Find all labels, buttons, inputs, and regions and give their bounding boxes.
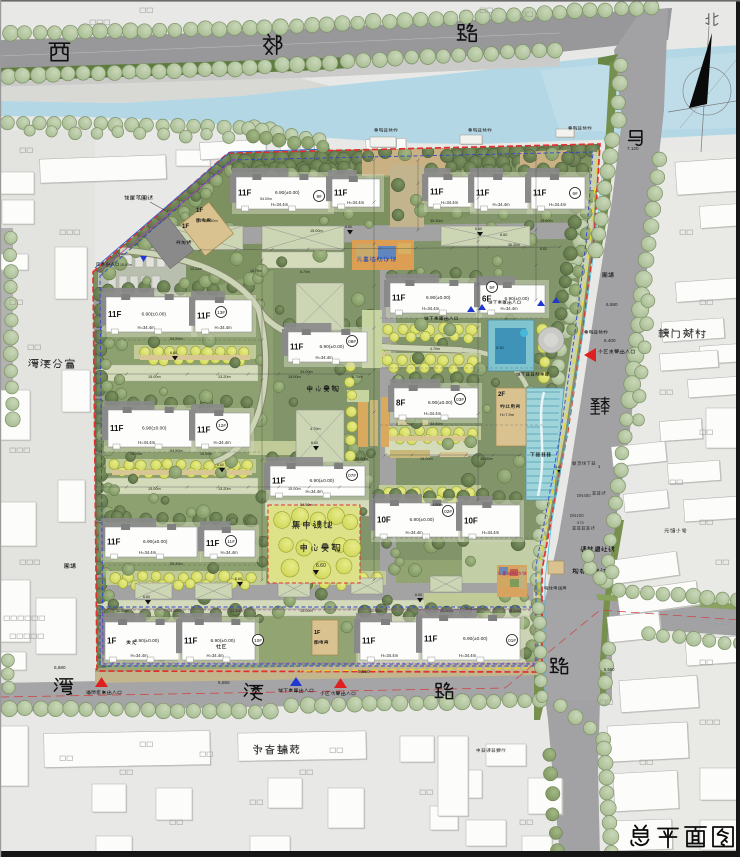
svg-text:5,680: 5,680 [54, 665, 66, 670]
svg-text:11F: 11F [272, 477, 285, 486]
svg-text:1F: 1F [314, 630, 321, 636]
svg-text:5,550: 5,550 [218, 680, 230, 685]
svg-text:6.60: 6.60 [235, 577, 242, 581]
svg-text:6.400: 6.400 [604, 338, 616, 343]
svg-text:H=34.4m: H=34.4m [131, 653, 149, 658]
svg-text:56.40m: 56.40m [170, 562, 183, 566]
svg-text:6.90(±0.00): 6.90(±0.00) [143, 539, 168, 545]
svg-text:15.00m: 15.00m [120, 263, 132, 267]
svg-text:H=34.4m: H=34.4m [441, 200, 459, 205]
svg-text:15.00m: 15.00m [130, 452, 142, 456]
svg-text:13#: 13# [217, 310, 225, 315]
svg-text:H=34.4m: H=34.4m [271, 202, 289, 207]
svg-text:6.90(±0.00): 6.90(±0.00) [135, 638, 160, 644]
svg-text:11F: 11F [206, 539, 219, 548]
svg-text:13.20m: 13.20m [218, 487, 231, 491]
svg-text:11F: 11F [197, 312, 210, 321]
svg-text:6.60: 6.60 [143, 595, 150, 599]
svg-text:DN100: DN100 [570, 513, 584, 518]
svg-text:11.00m: 11.00m [116, 609, 128, 613]
svg-text:11F: 11F [430, 188, 443, 197]
svg-text:7.120: 7.120 [627, 146, 639, 151]
svg-text:6#: 6# [572, 191, 578, 196]
svg-text:15.00m: 15.00m [148, 375, 161, 379]
svg-text:15.00m: 15.00m [288, 375, 301, 379]
svg-text:10F: 10F [464, 517, 478, 526]
svg-text:H=34.4m: H=34.4m [501, 306, 519, 311]
svg-text:5,550: 5,550 [358, 669, 370, 674]
svg-text:6.90(±0.00): 6.90(±0.00) [310, 478, 335, 484]
svg-text:H=34.4m: H=34.4m [139, 550, 157, 555]
svg-text:15.00m: 15.00m [480, 457, 493, 461]
svg-text:6.60: 6.60 [500, 233, 507, 237]
svg-text:6F: 6F [482, 295, 491, 304]
svg-text:34.50m: 34.50m [300, 503, 313, 507]
svg-text:11F: 11F [110, 424, 123, 433]
svg-text:6.60: 6.60 [345, 225, 352, 229]
svg-text:6.90(±0.00): 6.90(±0.00) [320, 344, 345, 350]
svg-text:35.30m: 35.30m [430, 219, 443, 223]
svg-text:4.70m: 4.70m [430, 347, 440, 351]
svg-text:11.00m: 11.00m [370, 609, 382, 613]
svg-text:8F: 8F [396, 399, 405, 408]
svg-text:03#: 03# [456, 397, 464, 402]
svg-text:07#: 07# [348, 473, 356, 478]
svg-text:15.00m: 15.00m [200, 452, 212, 456]
svg-text:15.00m: 15.00m [310, 229, 323, 233]
svg-text:16.70m: 16.70m [250, 269, 262, 273]
svg-text:02#: 02# [444, 509, 452, 514]
svg-text:6.90(±0.00): 6.90(±0.00) [428, 400, 453, 406]
svg-text:56.90m: 56.90m [430, 503, 443, 507]
svg-text:11F: 11F [197, 426, 210, 435]
svg-text:·: · [70, 689, 73, 700]
svg-text:9#: 9# [316, 194, 322, 199]
svg-text:6.60: 6.60 [170, 351, 177, 355]
svg-text:12#: 12# [218, 423, 226, 428]
svg-text:15.40m: 15.40m [465, 607, 477, 611]
svg-text:13.20m: 13.20m [218, 375, 231, 379]
svg-text:53.30m: 53.30m [205, 219, 218, 223]
svg-text:H=34.4m: H=34.4m [306, 489, 324, 494]
svg-text:6.60: 6.60 [316, 563, 326, 569]
svg-text:H=34.4m: H=34.4m [214, 440, 232, 445]
svg-text:6.70m: 6.70m [352, 375, 363, 379]
svg-text:54.50m: 54.50m [170, 337, 183, 341]
svg-text:H=7.9m: H=7.9m [500, 412, 515, 417]
svg-text:H=34.4m: H=34.4m [424, 411, 442, 416]
svg-text:H=34.4m: H=34.4m [459, 653, 477, 658]
svg-text:08#: 08# [348, 339, 356, 344]
svg-text:11F: 11F [238, 189, 251, 198]
svg-text:6.90(±0.00): 6.90(±0.00) [410, 517, 435, 523]
svg-text:01#: 01# [508, 638, 516, 643]
svg-text:6.60: 6.60 [475, 227, 482, 231]
svg-text:5#: 5# [489, 285, 495, 290]
svg-text:11#: 11# [227, 539, 235, 544]
svg-text:5,550: 5,550 [604, 667, 615, 672]
svg-text:11F: 11F [424, 635, 437, 644]
svg-text:1F: 1F [196, 208, 203, 214]
svg-text:H=34.4m: H=34.4m [406, 530, 424, 535]
svg-text:11F: 11F [392, 294, 405, 303]
svg-text:15.00m: 15.00m [355, 457, 368, 461]
svg-text:575: 575 [577, 520, 584, 525]
svg-text:10F: 10F [377, 516, 391, 525]
svg-text:H=34.4m: H=34.4m [549, 202, 567, 207]
svg-text:1F: 1F [182, 224, 189, 230]
svg-text:H=34.4m: H=34.4m [221, 550, 239, 555]
svg-text:54.50m: 54.50m [170, 449, 183, 453]
svg-text:13.30m: 13.30m [230, 609, 243, 613]
svg-text:H=34.4m: H=34.4m [215, 325, 233, 330]
svg-text:H=34.4m: H=34.4m [207, 653, 225, 658]
svg-text:H=34.4m: H=34.4m [316, 355, 334, 360]
svg-text:1F: 1F [107, 637, 116, 646]
svg-text:36.30m: 36.30m [508, 243, 520, 247]
svg-text:15.00m: 15.00m [540, 219, 553, 223]
svg-text:6.60: 6.60 [540, 247, 547, 251]
svg-text:6.90(±0.00): 6.90(±0.00) [211, 638, 236, 644]
svg-text:H=34.4m: H=34.4m [482, 530, 500, 535]
svg-text:H=34.4m: H=34.4m [138, 325, 156, 330]
svg-text:6.580: 6.580 [606, 302, 618, 307]
svg-text:11F: 11F [107, 538, 120, 547]
svg-text:11F: 11F [362, 637, 375, 646]
svg-text:6.70m: 6.70m [300, 270, 310, 274]
svg-text:H=34.4m: H=34.4m [138, 440, 156, 445]
svg-text:10#: 10# [254, 638, 262, 643]
svg-text:6.90(±0.00): 6.90(±0.00) [505, 296, 530, 302]
svg-text:54.00m: 54.00m [260, 197, 272, 201]
svg-text:2F: 2F [498, 392, 505, 398]
svg-text:11F: 11F [184, 637, 197, 646]
svg-text:6.60: 6.60 [415, 593, 422, 597]
svg-text:11F: 11F [334, 189, 347, 198]
svg-text:8.00m: 8.00m [510, 609, 520, 613]
svg-text:15.00m: 15.00m [300, 609, 313, 613]
svg-text:H=34.4m: H=34.4m [347, 200, 365, 205]
svg-text:6.90(±0.00): 6.90(±0.00) [142, 312, 167, 318]
svg-text:15.00m: 15.00m [148, 487, 161, 491]
svg-text:6.90(±0.00): 6.90(±0.00) [426, 295, 451, 301]
svg-text:6.60: 6.60 [217, 463, 224, 467]
svg-text:H=34.4m: H=34.4m [422, 306, 440, 311]
svg-text:4.70m: 4.70m [310, 427, 321, 431]
svg-text:11F: 11F [108, 310, 121, 319]
svg-text:34.00m: 34.00m [300, 370, 313, 374]
svg-text:DN400: DN400 [577, 493, 591, 498]
svg-text:15.00m: 15.00m [288, 487, 301, 491]
svg-text:15.00m: 15.00m [168, 609, 181, 613]
svg-text:15.00m: 15.00m [440, 609, 453, 613]
svg-text:13.20m: 13.20m [190, 267, 202, 271]
svg-text:6.50: 6.50 [496, 345, 505, 350]
svg-text:6.90(±0.00): 6.90(±0.00) [463, 636, 488, 642]
svg-text:H=34.4m: H=34.4m [493, 202, 511, 207]
svg-text:6.90(±0.00): 6.90(±0.00) [275, 190, 300, 196]
svg-text:11F: 11F [290, 343, 303, 352]
svg-text:H=34.4m: H=34.4m [381, 653, 399, 658]
svg-text:13.20m: 13.20m [420, 457, 433, 461]
svg-text:6.90(±0.00): 6.90(±0.00) [142, 426, 167, 432]
svg-text:6.60: 6.60 [311, 441, 318, 445]
svg-text:34.50m: 34.50m [430, 422, 443, 426]
